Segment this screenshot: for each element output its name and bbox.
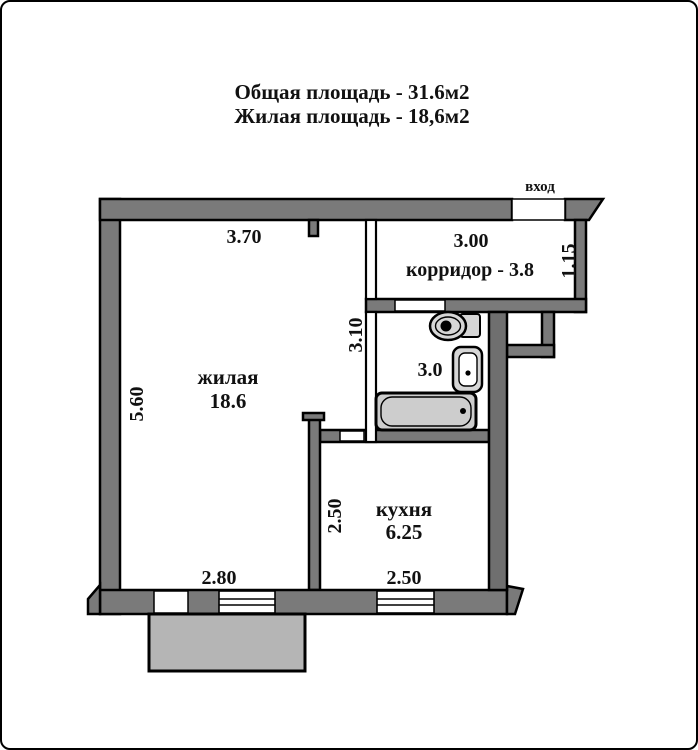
entrance-label: вход — [525, 179, 555, 195]
wall-left — [100, 199, 120, 614]
title-total-area: Общая площадь - 31.6м2 — [234, 80, 469, 104]
living-room-area: 18.6 — [210, 389, 247, 413]
entrance-door-opening — [512, 199, 565, 220]
kitchen-label: кухня — [376, 497, 432, 521]
dim-living-top: 3.70 — [227, 226, 262, 248]
dim-corridor-top: 3.00 — [454, 230, 489, 252]
wall-niche-bottom — [507, 345, 554, 357]
balcony — [149, 614, 305, 671]
wall-stub-kitchen-door — [303, 413, 324, 420]
dim-kitchen-bottom: 2.50 — [387, 567, 422, 589]
wall-kitchen-left — [309, 417, 320, 590]
kitchen-door-opening — [340, 431, 364, 441]
living-room-label: жилая — [198, 365, 259, 389]
bathroom-door-opening — [395, 300, 445, 311]
dim-passage-right: 3.10 — [345, 318, 367, 353]
wall-bottom-left-flare — [88, 585, 100, 614]
title-living-area: Жилая площадь - 18,6м2 — [234, 104, 469, 128]
wall-stub-living-top — [309, 220, 318, 236]
wall-bottom-right-flare — [507, 586, 523, 614]
balcony-door-opening — [154, 591, 188, 613]
dim-living-left: 5.60 — [126, 387, 148, 422]
sink-icon — [453, 347, 482, 392]
toilet-icon — [430, 312, 480, 340]
window-kitchen — [377, 591, 434, 613]
wall-top-right-angled — [565, 199, 603, 220]
wall-top — [100, 199, 512, 220]
window-living — [219, 591, 275, 613]
dim-living-bottom: 2.80 — [202, 567, 237, 589]
bathtub-icon — [376, 393, 476, 430]
floor-plan-svg: Общая площадь - 31.6м2 Жилая площадь - 1… — [2, 2, 698, 750]
bathroom-area: 3.0 — [418, 359, 443, 381]
dim-kitchen-left: 2.50 — [324, 499, 346, 534]
floorplan-page: Общая площадь - 31.6м2 Жилая площадь - 1… — [0, 0, 698, 750]
wall-bathroom-kitchen-right — [489, 312, 507, 590]
wall-corridor-left — [366, 220, 376, 299]
kitchen-area: 6.25 — [386, 520, 423, 544]
dim-corridor-right: 1.15 — [558, 244, 580, 279]
corridor-label: корридор - 3.8 — [406, 259, 534, 281]
